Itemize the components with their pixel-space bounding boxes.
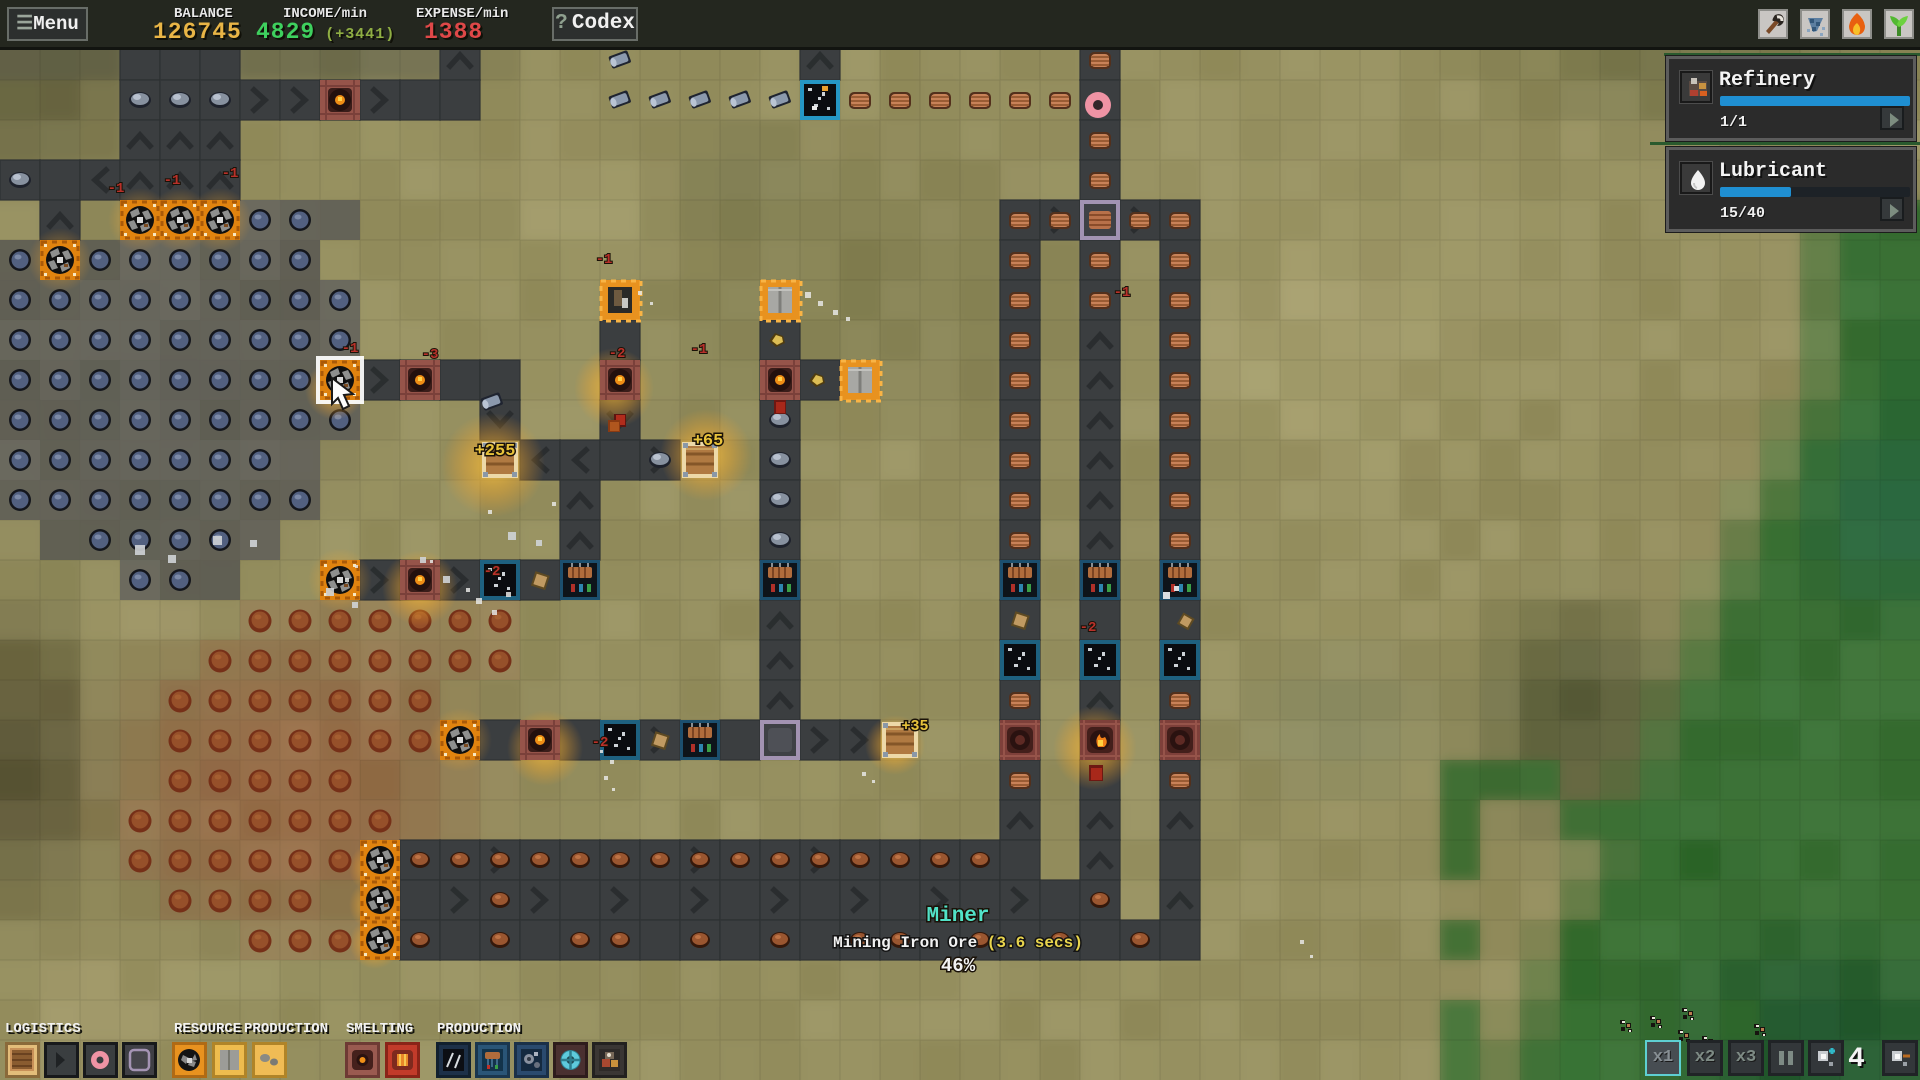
svg-text:-2: -2 (609, 346, 626, 362)
svg-text:Miner: Miner (926, 905, 989, 928)
svg-text:+65: +65 (693, 432, 724, 451)
svg-text:-1: -1 (1114, 285, 1131, 301)
svg-text:-1: -1 (691, 342, 708, 358)
svg-text:+255: +255 (475, 442, 516, 461)
svg-text:-1: -1 (222, 166, 239, 182)
svg-text:-2: -2 (484, 564, 501, 580)
svg-text:-1: -1 (164, 173, 181, 189)
svg-text:-2: -2 (1080, 620, 1097, 636)
svg-text:-1: -1 (342, 341, 359, 357)
svg-text:-1: -1 (596, 252, 613, 268)
svg-text:+35: +35 (901, 718, 928, 735)
svg-text:46%: 46% (941, 955, 976, 977)
svg-text:-3: -3 (422, 347, 439, 363)
svg-text:-1: -1 (108, 181, 125, 197)
svg-text:Mining Iron Ore (3.6 secs): Mining Iron Ore (3.6 secs) (833, 934, 1083, 952)
svg-text:-2: -2 (592, 735, 609, 751)
